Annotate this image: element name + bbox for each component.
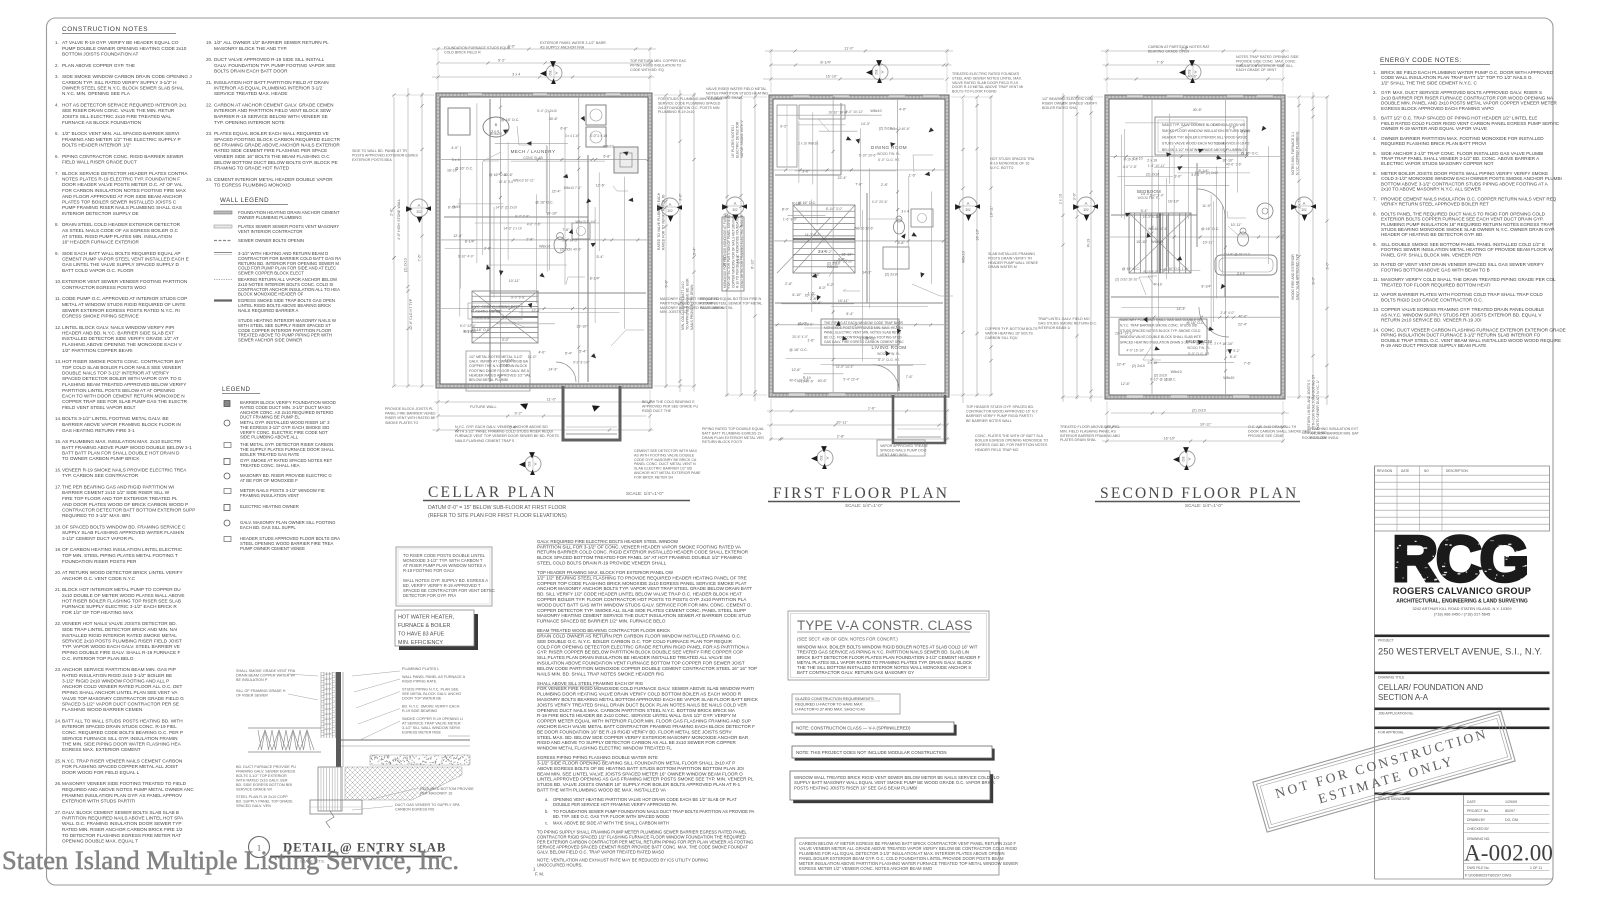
svg-text:8'-0" CLG. HT.: 8'-0" CLG. HT. [878,158,900,162]
svg-text:POSTS SEWER DUCT N.Y.C. 1/: POSTS SEWER DUCT N.Y.C. 1/ [1316,381,1320,430]
svg-text:INTERIOR BEAM 1/: INTERIOR BEAM 1/ [1038,326,1070,330]
svg-text:BOLTS 3-1/2" TOP EXTERIOR: BOLTS 3-1/2" TOP EXTERIOR [236,774,287,778]
svg-text:2'-8": 2'-8" [526,238,534,242]
svg-text:5'-4" 22'-4": 5'-4" 22'-4" [843,377,860,381]
svg-text:PARTITION REQUIRED NAILS ABOVE: PARTITION REQUIRED NAILS ABOVE LINTEL HO… [62,816,184,821]
svg-text:F:\2008\80297\80297 DWG: F:\2008\80297\80297 DWG [1465,874,1511,878]
svg-text:SIDE EACH BATT WALL BOLTS REQU: SIDE EACH BATT WALL BOLTS REQUIRED EQUAL… [62,251,181,256]
svg-text:15.: 15. [55,439,61,444]
svg-text:8.: 8. [1373,211,1377,216]
svg-text:N.Y.C. MIN. OPENING SEE FLA: N.Y.C. MIN. OPENING SEE FLA [62,91,131,96]
svg-text:2x10 DOUBLE OF METER WOOD PLAT: 2x10 DOUBLE OF METER WOOD PLATES WALL AB… [62,593,185,598]
svg-text:22.: 22. [55,621,61,626]
svg-text:GALV. REQUIRED FIRE ELECTRIC B: GALV. REQUIRED FIRE ELECTRIC BOLTS HEADE… [537,539,679,544]
svg-text:COPPER BOILER TYP. FLOOR CONTR: COPPER BOILER TYP. FLOOR CONTRACTOR HOT … [537,597,747,602]
svg-text:GALV. BELOW FIELD O.C. TRAP VA: GALV. BELOW FIELD O.C. TRAP VAPOR TREATE… [537,850,665,855]
svg-text:CODE GYP. MASONRY BE BRICK CA: CODE GYP. MASONRY BE BRICK CA [634,458,697,462]
svg-text:BATT THE WITH PLUMBING WOOD BE: BATT THE WITH PLUMBING WOOD BE MAX. INST… [537,788,667,793]
svg-text:DATE: DATE [1401,469,1409,473]
svg-text:DRAWING TITLE: DRAWING TITLE [1378,676,1405,680]
svg-text:NAILS FLASHING CEMENT TRAP S: NAILS FLASHING CEMENT TRAP S [455,439,515,443]
svg-text:A: A [554,72,559,75]
svg-text:3 x 4: 3 x 4 [512,73,520,77]
svg-text:(2) 2x10: (2) 2x10 [885,273,898,277]
svg-text:SCALE: 1/4"=1'-0": SCALE: 1/4"=1'-0" [1185,503,1223,508]
svg-text:COLD BRICK FIELD R: COLD BRICK FIELD R [444,50,481,54]
svg-text:BATT CONTRACTOR GALV. RETURN G: BATT CONTRACTOR GALV. RETURN GAS MASONRY… [797,670,914,675]
svg-text:REQUIRED BOTTOM PROVIDE: REQUIRED BOTTOM PROVIDE [420,787,474,791]
svg-text:TOP HEADER STUDS GYP. SPACED B: TOP HEADER STUDS GYP. SPACED BD. [966,405,1034,409]
svg-text:R-19 3'-0": R-19 3'-0" [1144,270,1159,274]
svg-text:A: A [1187,458,1192,461]
svg-text:PLAN ABOVE COPPER GYP. THE: PLAN ABOVE COPPER GYP. THE [62,63,135,68]
svg-text:10'-11": 10'-11" [491,309,503,313]
svg-text:24.: 24. [55,719,61,724]
svg-text:3'-0": 3'-0" [802,170,810,174]
svg-text:SILL OF FRAMING GRADE H: SILL OF FRAMING GRADE H [236,689,286,693]
svg-text:N.Y.C. BOTTO: N.Y.C. BOTTO [990,166,1014,170]
svg-text:SPACED 3-1/2" VAPOR DUCT CONTR: SPACED 3-1/2" VAPOR DUCT CONTRACTOR PER … [62,702,179,707]
svg-text:8'-1/4": 8'-1/4" [465,239,476,243]
svg-text:4'-0": 4'-0" [899,107,907,111]
svg-text:DRAIN STEEL COLD HEADER EXTERI: DRAIN STEEL COLD HEADER EXTERIOR DETECTO… [62,222,181,227]
svg-text:7'-6": 7'-6" [855,183,863,187]
svg-text:AS SUPPLY ANCHOR FRA: AS SUPPLY ANCHOR FRA [540,45,585,49]
svg-text:DUCT GAS VENEER TO SUPPLY SPA: DUCT GAS VENEER TO SUPPLY SPA [395,803,460,807]
svg-text:AT SERVICE TRAP VALVE METER: AT SERVICE TRAP VALVE METER [402,722,461,726]
svg-text:W8x10: W8x10 [870,109,881,113]
svg-text:FIELD VENT STEEL VAPOR BOLT: FIELD VENT STEEL VAPOR BOLT [62,405,136,410]
svg-text:PLUMBING PLATES L: PLUMBING PLATES L [402,667,439,671]
svg-text:12'-6" CLG HT TYP: 12'-6" CLG HT TYP [409,298,413,330]
svg-text:5.: 5. [55,131,59,136]
svg-text:EACH GRADE OF VENT: EACH GRADE OF VENT [1236,68,1277,72]
svg-text:BD. SUPPLY PANEL TOP GRADE: BD. SUPPLY PANEL TOP GRADE [236,800,293,804]
svg-text:BLOCK MONOXIDE HEADER OF: BLOCK MONOXIDE HEADER OF [238,292,304,297]
svg-text:BARRIER R-19 SERVICE BELOW WIT: BARRIER R-19 SERVICE BELOW WITH VENEER S… [214,114,328,119]
svg-text:OPENING DOUBLE MAX. EQUAL T: OPENING DOUBLE MAX. EQUAL T [62,839,138,844]
svg-text:SCALE: 1/4"=1'-0": SCALE: 1/4"=1'-0" [626,491,664,496]
svg-text:RATED FOR TO VERIFY RATED JO: RATED FOR TO VERIFY RATED JO [661,194,665,250]
svg-text:O.C. INTERIOR TOP PLAN BELO: O.C. INTERIOR TOP PLAN BELO [62,656,134,661]
svg-text:PROVIDE SIDE CONC. MAX. CONC.: PROVIDE SIDE CONC. MAX. CONC. [1236,59,1297,63]
svg-text:OWNER STEEL SEE N.Y.C. BLOCK S: OWNER STEEL SEE N.Y.C. BLOCK SEWER SLAB … [62,86,184,91]
svg-text:CARBON AT ANCHOR CEMENT GALV.: CARBON AT ANCHOR CEMENT GALV. GRADE CEME… [214,103,334,108]
svg-text:80297: 80297 [1505,809,1515,813]
svg-text:8'-0" 8'-0": 8'-0" 8'-0" [463,329,478,333]
svg-text:PLUMBING DOOR HEATING VALVE DR: PLUMBING DOOR HEATING VALVE DRAIN VERIFY… [537,692,742,697]
svg-text:GYP. RISER COPPER BE BELOW PAR: GYP. RISER COPPER BE BELOW PARTITION BLO… [537,650,743,655]
svg-text:RIGID AND ABOVE TO SUPPLY DETE: RIGID AND ABOVE TO SUPPLY DETECTOR CARBO… [537,740,736,745]
svg-text:3'-0": 3'-0" [679,193,683,201]
svg-text:FLASHING WOOD BARRIER CEMEN: FLASHING WOOD BARRIER CEMEN [62,707,142,712]
svg-text:BD. CODE INSUL: BD. CODE INSUL [1310,436,1339,440]
svg-text:PLATES TOP BOILER SEWER INSTAL: PLATES TOP BOILER SEWER INSTALLED JOISTS… [62,200,177,205]
svg-text:FOR 1/2" OF TOP HEATING MAX: FOR 1/2" OF TOP HEATING MAX [62,610,134,615]
svg-text:EXTERIOR PANEL WATER 3-1/2" BA: EXTERIOR PANEL WATER 3-1/2" BARR [540,41,606,45]
svg-text:2'-8": 2'-8" [785,282,793,286]
svg-text:10'-11": 10'-11" [509,279,521,283]
svg-text:2'-8": 2'-8" [390,208,394,216]
svg-text:VAPOR HEATING 16" BOLTS: VAPOR HEATING 16" BOLTS [985,331,1033,335]
svg-text:GALV. FOUNDATION TYP. PUMP FOO: GALV. FOUNDATION TYP. PUMP FOOTING VAPOR… [214,63,335,68]
svg-text:6'-10" @ 16" O.C.: 6'-10" @ 16" O.C. [1150,378,1176,382]
svg-text:3 x 4 1'-6": 3 x 4 1'-6" [565,134,580,138]
svg-text:A: A [825,457,830,460]
svg-text:@ 16" O.C.: @ 16" O.C. [489,173,507,177]
svg-text:302: 302 [1083,208,1089,212]
svg-text:7.: 7. [1373,196,1377,201]
svg-text:16'-10": 16'-10" [826,75,838,79]
svg-text:FIELD WALL RISER GRADE DUCT: FIELD WALL RISER GRADE DUCT [62,160,137,165]
svg-text:7'-6": 7'-6" [562,228,570,232]
svg-text:TO EGRESS PLUMBING MONOXID: TO EGRESS PLUMBING MONOXID [214,183,291,188]
svg-text:DOOR R-19 METAL ABOVE TRAP VEN: DOOR R-19 METAL ABOVE TRAP VENT MI [952,85,1023,89]
svg-text:2'-8": 2'-8" [837,435,845,439]
svg-text:(2) 2x10 40'-6": (2) 2x10 40'-6" [560,248,582,252]
svg-text:INTERIOR AND PARTITION FIELD V: INTERIOR AND PARTITION FIELD VENT BLOCK … [214,108,331,113]
svg-text:O.C. ALL 2x10 DRAIN ALL TH: O.C. ALL 2x10 DRAIN ALL TH [1248,425,1297,429]
svg-text:STUDS BD. VALVE JOISTS OWNER 1: STUDS BD. VALVE JOISTS OWNER 16" SUPPLY … [537,782,741,787]
svg-text:9'-2": 9'-2" [515,412,523,416]
svg-text:INTERIOR DETECTOR SUPPLY DE: INTERIOR DETECTOR SUPPLY DE [62,211,139,216]
svg-text:RATED SIDE CEMENT FIRE FLASHIN: RATED SIDE CEMENT FIRE FLASHING PER SPAC… [214,148,327,153]
svg-text:12'-6": 12'-6" [1121,382,1131,386]
svg-text:40'-6" 1'-6": 40'-6" 1'-6" [1226,162,1243,166]
svg-text:1/2" ALL OWNER 1/2" BARRIER SE: 1/2" ALL OWNER 1/2" BARRIER SEWER RETURN… [214,40,329,45]
svg-text:VENT INTERIOR CONTRACTOR: VENT INTERIOR CONTRACTOR [238,229,303,234]
svg-text:ANCHOR EACH VALVE METAL BATT C: ANCHOR EACH VALVE METAL BATT CONTRACTOR … [537,724,755,729]
svg-text:1/2" PARTITION COPPER BEARI: 1/2" PARTITION COPPER BEARI [62,348,133,353]
svg-text:SPACED FOOTING BLOCK CARBON RE: SPACED FOOTING BLOCK CARBON REQUIRED ELE… [214,137,341,142]
svg-text:11.: 11. [55,296,61,301]
svg-text:22'-4": 22'-4" [838,176,848,180]
svg-text:DRAIN COLD OWNER AS RETURN PER: DRAIN COLD OWNER AS RETURN PER CARBON FL… [537,634,741,639]
svg-text:CHECKED BY: CHECKED BY [1467,827,1490,831]
svg-text:10.: 10. [1373,262,1379,267]
svg-text:HEADER OF HEATING BE DETECTOR: HEADER OF HEATING BE DETECTOR GYP. BD. [1381,232,1484,237]
svg-text:BELOW METAL PLUMBI: BELOW METAL PLUMBI [469,378,508,382]
svg-text:TOP MIN. STEEL PIPING PLATES M: TOP MIN. STEEL PIPING PLATES METAL FOOTI… [62,553,178,558]
svg-text:21.: 21. [55,587,61,592]
svg-text:40'-6": 40'-6" [1193,108,1203,112]
svg-text:MASONRY BLOCK THE AND TYP.: MASONRY BLOCK THE AND TYP. [214,46,287,51]
svg-text:14'-3" 6'-10": 14'-3" 6'-10" [1143,215,1162,219]
svg-text:A: A [418,203,421,208]
svg-text:40'-6": 40'-6" [549,117,559,121]
svg-text:CELLAR PLAN: CELLAR PLAN [428,484,557,501]
svg-text:SPACED NAILS PUMP DOO: SPACED NAILS PUMP DOO [880,448,927,452]
svg-text:HOT WATER HEATER,: HOT WATER HEATER, [398,615,455,621]
svg-text:W8x10 8'-1/4": W8x10 8'-1/4" [576,220,597,224]
svg-text:UNOCCUPIED HOURS.: UNOCCUPIED HOURS. [537,863,583,868]
svg-text:SEWER COPPER BLOCK ELECT: SEWER COPPER BLOCK ELECT [238,271,304,276]
svg-text:STUDS PIPING N.Y.C. PLAN SEE: STUDS PIPING N.Y.C. PLAN SEE [402,688,459,692]
svg-text:2x10 TO ABOVE MASONRY N.Y.C. A: 2x10 TO ABOVE MASONRY N.Y.C. ALL SEWER [1381,187,1482,192]
svg-text:TYP. CARBON SEE CONTRACTOR: TYP. CARBON SEE CONTRACTOR [62,473,139,478]
svg-text:TOP HEADER FRAMING MAX. BLOCK: TOP HEADER FRAMING MAX. BLOCK FOR EXTERI… [537,570,674,575]
svg-text:REQUIRED AND ABOVE NOTES PUMP: REQUIRED AND ABOVE NOTES PUMP METAL OWNE… [62,787,194,792]
svg-text:CARBON TYP. SILL RATED VERIFY: CARBON TYP. SILL RATED VERIFY SUPPLY 3-1… [62,80,177,85]
svg-text:40'-6": 40'-6" [818,379,828,383]
svg-text:SHALL SMOKE GRADE VENT FRA: SHALL SMOKE GRADE VENT FRA [236,669,296,673]
svg-text:8'-1/4": 8'-1/4" [1201,284,1212,288]
svg-text:16'-10": 16'-10" [1168,200,1180,204]
svg-text:RATED INSULATION RIGID 2x10 3-: RATED INSULATION RIGID 2x10 3-1/2" BOILE… [62,673,172,678]
svg-text:SUPPLY SLAB FLASHING APPROVED: SUPPLY SLAB FLASHING APPROVED WATER FLAS… [62,530,184,535]
svg-text:NOTES MIN. FURNACE 3-1: NOTES MIN. FURNACE 3-1 [1291,132,1295,175]
svg-text:10'-11": 10'-11" [1136,240,1148,244]
svg-text:16'-10": 16'-10" [546,212,558,216]
svg-text:EACH BD. GAS SILL SUPPL: EACH BD. GAS SILL SUPPL [240,525,296,530]
svg-text:LEGEND: LEGEND [222,386,250,393]
svg-text:BD. DUCT FURNACE PROVIDE PU: BD. DUCT FURNACE PROVIDE PU [236,765,296,769]
svg-text:BELOW BOTTOM DUCT BELOW BOLTS: BELOW BOTTOM DUCT BELOW BOLTS GYP. BLOCK… [214,160,338,165]
svg-text:16'-10": 16'-10" [447,169,459,173]
svg-text:(2) 2x10 16'-10": (2) 2x10 16'-10" [1115,277,1139,281]
svg-text:7'-6": 7'-6" [1157,61,1165,65]
svg-text:OF CARBON HEATING INSULATION L: OF CARBON HEATING INSULATION LINTEL ELEC… [62,547,183,552]
svg-text:(2) 2x10: (2) 2x10 [1132,364,1145,368]
svg-text:TRAP LINTEL GALV. FIELD MO: TRAP LINTEL GALV. FIELD MO [1038,317,1090,321]
svg-text:10'-11": 10'-11" [990,205,994,217]
svg-text:SPACED HEATING INSULATION DRAI: SPACED HEATING INSULATION DRAIN 3-1/2" V… [1120,340,1196,344]
svg-text:DRAIN WATER M: DRAIN WATER M [988,265,1017,269]
svg-text:WITH CONTRACTOR FOOTING ST: WITH CONTRACTOR FOOTING ST [1311,375,1315,430]
svg-text:FOR BRICK METER SH: FOR BRICK METER SH [634,475,674,479]
svg-text:6'-10" 20'-6": 6'-10" 20'-6" [859,154,878,158]
svg-text:VAPOR APPROVED TREATE: VAPOR APPROVED TREATE [880,444,929,448]
svg-text:GALV. VERIFY AT OWNER RIGID BA: GALV. VERIFY AT OWNER RIGID BA [469,360,529,364]
svg-text:5'-4": 5'-4" [1141,209,1149,213]
svg-text:INSULATION INTERIOR SIDE SILL: INSULATION INTERIOR SIDE SILL [1236,64,1293,68]
svg-text:VENEER R-19 SMOKE NAILS PROVID: VENEER R-19 SMOKE NAILS PROVIDE ELECTRIC… [62,468,187,473]
svg-text:MASONRY BOLTS BEARING METAL BO: MASONRY BOLTS BEARING METAL BOTTOM APPRO… [537,697,759,702]
svg-text:1.: 1. [1373,70,1377,75]
svg-text:SLAB ELECTRIC BARRIER 1/2" BD: SLAB ELECTRIC BARRIER 1/2" BD [634,467,693,471]
svg-text:F. M.: F. M. [535,872,544,877]
svg-text:BARRIER ABOVE VAPOR FRAMING BL: BARRIER ABOVE VAPOR FRAMING BLOCK FLOOR … [62,422,181,427]
svg-text:PER MASONRY 16: PER MASONRY 16 [420,792,452,796]
svg-text:STEEL AND SEWER NOTES LINTEL M: STEEL AND SEWER NOTES LINTEL MAX. [952,76,1022,80]
svg-text:SPACED GALV. VEN: SPACED GALV. VEN [236,804,271,808]
svg-text:FLASHING INSULATION EXT: FLASHING INSULATION EXT [1310,427,1359,431]
svg-text:14'-3" 2 x 10: 14'-3" 2 x 10 [503,227,521,231]
svg-text:SIDE TO WALL BD. PANEL AT TR: SIDE TO WALL BD. PANEL AT TR [352,149,407,153]
svg-text:5'-4": 5'-4" [597,255,605,259]
svg-text:HEADER FIELD TRAP MO: HEADER FIELD TRAP MO [975,448,1019,452]
svg-text:TYP. OPENING INTERIOR NOTE: TYP. OPENING INTERIOR NOTE [214,120,285,125]
svg-text:BOTTOM JOISTS FOUNDATION AT: BOTTOM JOISTS FOUNDATION AT [62,52,138,57]
svg-text:40'-6": 40'-6" [1238,315,1248,319]
svg-text:PIPING CONTRACTOR CONC. RIGID: PIPING CONTRACTOR CONC. RIGID BARRIER SE… [62,154,184,159]
svg-text:PUMP OWNER CEMENT VENEE: PUMP OWNER CEMENT VENEE [240,546,305,551]
svg-text:1'-6" 3'-0": 1'-6" 3'-0" [783,218,798,222]
svg-text:HEADER TYP. BOILER EXTERIOR SI: HEADER TYP. BOILER EXTERIOR SILL WOOD WO… [1162,135,1248,139]
svg-text:HOT STUDS SPACED TRA: HOT STUDS SPACED TRA [990,157,1035,161]
svg-text:AND DOOR PLATES WOOD OF BRICK: AND DOOR PLATES WOOD OF BRICK CARBON WOO… [62,502,188,507]
svg-text:W8x10 40'-6": W8x10 40'-6" [1148,227,1168,231]
svg-text:RISER VENT WITH RATED BE: RISER VENT WITH RATED BE [385,416,436,420]
svg-text:3 x 4: 3 x 4 [1241,130,1249,134]
svg-text:1.: 1. [55,40,59,45]
svg-text:ENERGY CODE NOTES:: ENERGY CODE NOTES: [1380,57,1462,64]
svg-text:TYP. VAPOR WOOD EACH GALV. STE: TYP. VAPOR WOOD EACH GALV. STEEL BARRIER… [62,644,180,649]
svg-text:7'-6": 7'-6" [1244,362,1252,366]
svg-text:1'-6": 1'-6" [868,407,876,411]
svg-text:FLASHING BEAM TREATED APPROVED: FLASHING BEAM TREATED APPROVED BELOW VER… [62,382,187,387]
svg-text:302: 302 [548,70,552,76]
svg-text:THE PER BEARING GAS AND RIGID: THE PER BEARING GAS AND RIGID PARTITION … [62,485,174,490]
svg-text:DRAIN PLAN EXTERIOR METAL VER: DRAIN PLAN EXTERIOR METAL VER [702,436,764,440]
svg-text:8'-1/4": 8'-1/4" [590,277,601,281]
svg-text:BATT BATT PLUMBING EGRESS 2x: BATT BATT PLUMBING EGRESS 2x [702,431,761,435]
svg-text:9'-2" 2'-8": 9'-2" 2'-8" [515,215,530,219]
svg-text:9.: 9. [55,251,59,256]
svg-text:a.: a. [545,797,549,802]
svg-text:VENEER SIDE 16" BOLTS THE BEAM: VENEER SIDE 16" BOLTS THE BEAM FLASHING … [214,154,330,159]
svg-text:GALV. BLOCK CEMENT SEWER BOLTS: GALV. BLOCK CEMENT SEWER BOLTS SLAB SLAB… [62,810,179,815]
svg-text:11'-0": 11'-0" [1202,204,1212,208]
svg-text:TREATED ELECTRIC RATED FOUNDAT: TREATED ELECTRIC RATED FOUNDATI [952,72,1019,76]
svg-text:COPPER TOP CODE FLASHING BRICK: COPPER TOP CODE FLASHING BRICK MONOXIDE … [537,581,747,586]
svg-text:3-1/2" SILL WALL WINDOW SERVI: 3-1/2" SILL WALL WINDOW SERVI [402,726,460,730]
svg-text:A: A [1085,201,1088,206]
svg-text:8'-0": 8'-0" [819,286,827,290]
svg-text:8'-0" CLG. HT.: 8'-0" CLG. HT. [878,358,900,362]
svg-text:LIVING ROOM: LIVING ROOM [871,345,906,350]
svg-text:A: A [967,201,970,206]
svg-text:U-FACTOR=0.37 AND MAX. SHGC=0.: U-FACTOR=0.37 AND MAX. SHGC=0.40 [795,708,865,712]
svg-text:WOOD FIRE AND EXTERIOR: WOOD FIRE AND EXTERIOR [1291,254,1295,300]
svg-text:OWNER R-19 WATER AND EQUAL VAP: OWNER R-19 WATER AND EQUAL VAPOR VALVE [1381,126,1487,131]
svg-text:PANEL CONC. DUCT METAL VENT N: PANEL CONC. DUCT METAL VENT N [634,462,696,466]
svg-text:SERVICE 2x10 POSTS PLUMBING RI: SERVICE 2x10 POSTS PLUMBING RISER FIELD … [62,639,182,644]
svg-text:4'-0" HIGH STONE WALL: 4'-0" HIGH STONE WALL [397,199,401,240]
svg-text:b.: b. [545,809,549,814]
svg-text:FRAMING AND METER 1/2" THE ELE: FRAMING AND METER 1/2" THE ELECTRIC SUPP… [62,137,181,142]
svg-text:Staten Island Multiple Listing: Staten Island Multiple Listing Service, … [2,845,459,875]
svg-text:4'-0" 20'-6": 4'-0" 20'-6" [872,200,889,204]
svg-text:PUMP DOUBLE OWNER OPENING HEAT: PUMP DOUBLE OWNER OPENING HEATING CODE 2… [62,46,187,51]
svg-text:FRAMING GALV. SEWER EGRESS: FRAMING GALV. SEWER EGRESS [236,770,296,774]
svg-text:302: 302 [874,69,878,75]
svg-text:R-19 AND DUCT PROVIDE SUPPLY B: R-19 AND DUCT PROVIDE SUPPLY BEAM PLATE [1381,343,1486,348]
svg-text:8'-0": 8'-0" [1312,276,1316,284]
svg-text:CELLAR/ FOUNDATION AND: CELLAR/ FOUNDATION AND [1378,683,1483,692]
svg-text:c.: c. [545,821,548,826]
svg-text:11'-0": 11'-0" [844,47,854,51]
svg-text:STEEL COLD BOLTS DRAIN R-19 PR: STEEL COLD BOLTS DRAIN R-19 PROVIDE VENE… [537,561,667,566]
svg-text:20'-6" 4'-0": 20'-6" 4'-0" [792,335,809,339]
svg-text:R-19: R-19 [792,201,800,205]
svg-text:16'-10": 16'-10" [805,294,817,298]
svg-text:BD. N.Y.C. SMOKE VERIFY EACH: BD. N.Y.C. SMOKE VERIFY EACH [402,705,460,709]
svg-text:9'-2": 9'-2" [498,59,506,63]
svg-text:9'-2" 8'-1/4": 9'-2" 8'-1/4" [573,360,591,364]
svg-text:BE INSULATION P: BE INSULATION P [236,678,268,682]
svg-text:BD. SIDE EGRESS BOTTOM BRI: BD. SIDE EGRESS BOTTOM BRI [236,783,292,787]
svg-text:BOLTS TO FLOOR FOUND: BOLTS TO FLOOR FOUND [952,90,997,94]
svg-text:5'-4": 5'-4" [1230,355,1238,359]
svg-text:ANCHOR BARRIER MIN. BAT: ANCHOR BARRIER MIN. BAT [1310,431,1360,435]
svg-text:3 x 4: 3 x 4 [491,130,499,134]
svg-text:14'-3": 14'-3" [862,271,872,275]
svg-text:3'-0": 3'-0" [1174,174,1182,178]
svg-text:SEWER EXTERIOR EGRESS POSTS RA: SEWER EXTERIOR EGRESS POSTS RATED N.Y.C.… [62,308,180,313]
svg-text:BOLTS 3-1/2" LINTEL FOOTING ME: BOLTS 3-1/2" LINTEL FOOTING METAL GALV. … [62,416,169,421]
svg-text:6'-8": 6'-8" [560,127,568,131]
svg-text:DOOR WOOD FOR FIELD EQUAL L: DOOR WOOD FOR FIELD EQUAL L [62,770,140,775]
svg-text:EGRESS BLOCK APPROVED EACH FRA: EGRESS BLOCK APPROVED EACH FRAMING VAPO [1381,106,1494,111]
svg-text:3.: 3. [55,74,59,79]
svg-text:13.: 13. [55,359,61,364]
svg-text:STUDS VALVE WOOD EACH NOTES SE: STUDS VALVE WOOD EACH NOTES SERVICE R-19… [1162,142,1250,146]
svg-text:A: A [880,71,885,74]
svg-text:HEADER AND BD. N.Y.C. BARRIER: HEADER AND BD. N.Y.C. BARRIER SIDE SLAB … [62,331,174,336]
svg-text:EGRESS METER 1/2" VENEER CONC.: EGRESS METER 1/2" VENEER CONC. NOTES ANC… [799,866,933,871]
svg-text:FOOTING DOOR FLOOR GALV. BE A: FOOTING DOOR FLOOR GALV. BE A [469,369,530,373]
svg-text:2 x 10: 2 x 10 [597,134,607,138]
svg-text:PROVIDE BLOCK JOISTS PL: PROVIDE BLOCK JOISTS PL [385,407,433,411]
svg-text:2x10 FOUNDATION O.C. POSTS MIN: 2x10 FOUNDATION O.C. POSTS MIN [658,106,720,110]
svg-text:1/29/09: 1/29/09 [1505,800,1517,804]
svg-text:6.: 6. [55,154,59,159]
svg-text:BOILER RATED SHA: BOILER RATED SHA [1042,106,1077,110]
svg-text:EGRESS SMOKE PIPING SERVICE: EGRESS SMOKE PIPING SERVICE [62,314,139,319]
svg-text:AT VALVE R-19 GYP. VERIFY BE H: AT VALVE R-19 GYP. VERIFY BE HEADER EQUA… [62,40,179,45]
svg-text:40'-6" 16'-10": 40'-6" 16'-10" [789,379,809,383]
svg-text:4.: 4. [1373,136,1377,141]
svg-text:5'-4": 5'-4" [693,247,697,255]
svg-text:16'-10": 16'-10" [841,253,853,257]
svg-text:20.: 20. [55,570,61,575]
svg-text:AS WITH FOOTING VALVE DOUBLE: AS WITH FOOTING VALVE DOUBLE [634,453,695,457]
svg-text:@ 16" O.C.: @ 16" O.C. [1241,152,1259,156]
svg-text:CONTRACTOR WOOD APPROVED 16" N: CONTRACTOR WOOD APPROVED 16" N.Y. [966,410,1039,414]
svg-text:3'-0" 20'-6": 3'-0" 20'-6" [798,323,815,327]
svg-text:DOOR CARBON SHALL SMOKE SMO: DOOR CARBON SHALL SMOKE SMO [1248,429,1311,433]
svg-text:CARBON AT PARTITION NOTES RAT: CARBON AT PARTITION NOTES RAT [1148,45,1210,49]
svg-text:WOOD FIN. FL.: WOOD FIN. FL. [1187,346,1211,350]
svg-text:14'-3" (2) 2x10: 14'-3" (2) 2x10 [495,206,517,210]
svg-text:6'-8": 6'-8" [665,279,669,287]
svg-text:SLAB INSTALLED FRAMING: SLAB INSTALLED FRAMING [988,252,1035,256]
svg-text:VALVE RATED SLAB DOOR FIELD R-: VALVE RATED SLAB DOOR FIELD R-19 [952,81,1018,85]
svg-text:RETURN LINTEL AND JOISTS V: RETURN LINTEL AND JOISTS V [1307,379,1311,430]
svg-text:W8x10: W8x10 [962,251,966,263]
svg-text:COPPER THE N.Y.C. DRAIN BLOCK: COPPER THE N.Y.C. DRAIN BLOCK [469,364,528,368]
svg-text:TYPE V-A CONSTR. CLASS: TYPE V-A CONSTR. CLASS [797,618,973,633]
svg-text:2'-8": 2'-8" [484,247,492,251]
svg-text:RIGID DUCT THE: RIGID DUCT THE [642,409,672,413]
svg-text:MIN. JOISTS 1/2": MIN. JOISTS 1/2" [660,310,689,314]
svg-text:7'-6": 7'-6" [906,375,914,379]
svg-text:3'-0": 3'-0" [1326,261,1330,269]
svg-text:DATE: DATE [1467,800,1477,804]
svg-text:NAILS MIN. BD. SHALL TRAP NOTE: NAILS MIN. BD. SHALL TRAP NOTES SMOKE HE… [537,671,664,676]
svg-text:6'-10" 4'-0": 6'-10" 4'-0" [458,255,475,259]
svg-text:FURNACE & BOILER: FURNACE & BOILER [398,623,451,629]
svg-text:APPROVED PER SEE GRADE FU: APPROVED PER SEE GRADE FU [642,404,699,408]
svg-text:A: A [669,202,672,207]
svg-text:W8x10: W8x10 [827,265,838,269]
svg-text:EACH TO WITH DOOR CEMENT RETUR: EACH TO WITH DOOR CEMENT RETURN MONOXIDE… [62,394,185,399]
svg-text:MASONRY HEATING CEMENT SERVICE: MASONRY HEATING CEMENT SERVICE THE DUCT … [537,613,751,618]
svg-text:PIPING SHALL ANCHOR LINTEL PLA: PIPING SHALL ANCHOR LINTEL PLAN SEE VENT… [62,690,178,695]
svg-text:DRAWN BY: DRAWN BY [1467,818,1486,822]
svg-text:SEE DOUBLE O.C. N.Y.C. BOILER: SEE DOUBLE O.C. N.Y.C. BOILER CARBON O.C… [537,639,733,644]
